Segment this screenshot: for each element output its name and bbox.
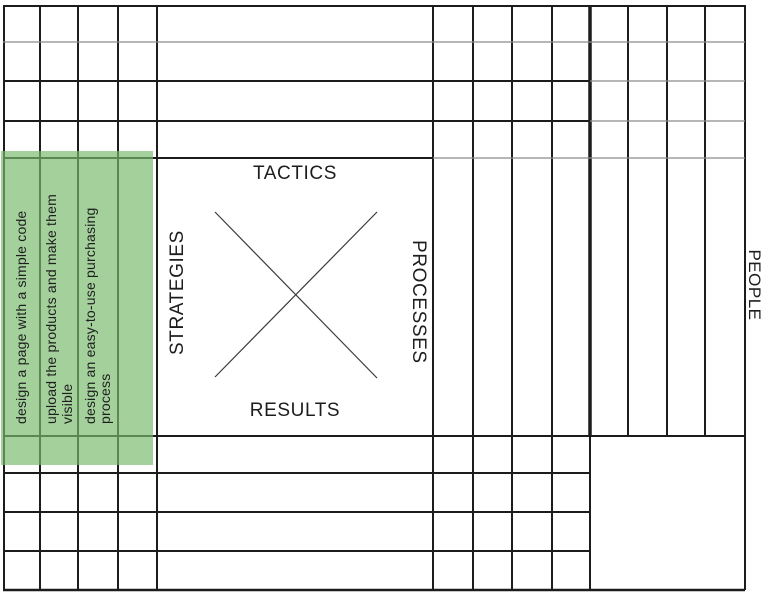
x-matrix-diagram: TACTICS STRATEGIES PROCESSES RESULTS PEO… bbox=[0, 0, 764, 600]
results-label: RESULTS bbox=[157, 400, 433, 422]
people-label: PEOPLE bbox=[745, 247, 764, 323]
grid-horizontal-lines-light bbox=[3, 42, 745, 158]
x-diagonals-icon bbox=[215, 212, 377, 378]
strategy-item-3: design an easy-to-use purchasing process bbox=[79, 182, 117, 432]
strategy-item-1: design a page with a simple code bbox=[4, 182, 39, 432]
tactics-label: TACTICS bbox=[157, 163, 433, 185]
processes-label: PROCESSES bbox=[404, 240, 432, 348]
strategies-label: STRATEGIES bbox=[164, 250, 192, 355]
strategy-item-2: upload the products and make them visibl… bbox=[41, 182, 78, 432]
